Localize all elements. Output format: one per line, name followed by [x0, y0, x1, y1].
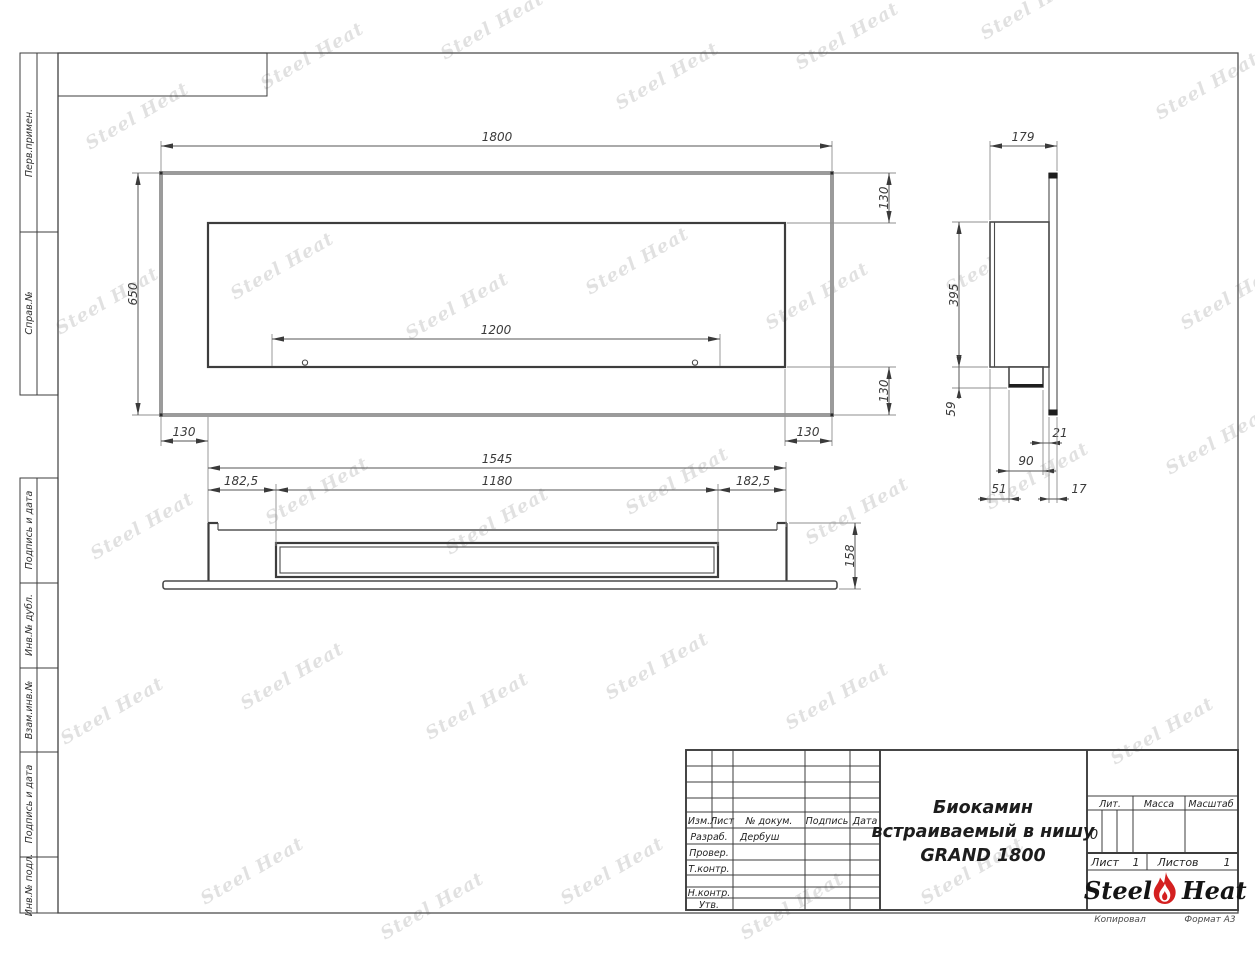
role-checked: Провер. [689, 848, 728, 859]
dim-margin-right: 130 [797, 425, 820, 439]
margin-label: Инв.№ подл. [24, 854, 35, 917]
doc-title-line1: Биокамин [933, 798, 1033, 818]
sheets-total: 1 [1224, 856, 1231, 869]
dim-margin-left: 130 [173, 425, 196, 439]
dim-slot-length: 1180 [482, 474, 513, 488]
technical-drawing-canvas: Steel Heat Steel Heat Steel Heat Steel H… [0, 0, 1255, 970]
doc-title-line3: GRAND 1800 [920, 846, 1045, 866]
sheets-label: Листов [1156, 856, 1198, 869]
role-approved: Утв. [699, 900, 719, 911]
copied-label: Копировал [1094, 915, 1146, 925]
dim-niche-height: 395 [947, 284, 961, 307]
developer-name: Дербуш [739, 832, 780, 843]
dim-burner-width: 1200 [481, 323, 512, 337]
scale-label: Масштаб [1188, 799, 1233, 810]
dim-body-height: 158 [843, 544, 857, 567]
dim-panel-gap: 21 [1052, 426, 1067, 440]
lit-value: 0 [1090, 828, 1098, 843]
rev-header-doc: № докум. [745, 816, 793, 827]
margin-label: Взам.инв.№ [24, 681, 35, 740]
doc-title-line2: встраиваемый в нишу [872, 822, 1097, 842]
dim-side-offset-left: 182,5 [224, 474, 258, 488]
sheet-label: Лист [1090, 856, 1119, 869]
margin-label: Перв.примен. [24, 109, 35, 177]
role-tcontrol: Т.контр. [688, 864, 729, 875]
steelheat-logo: Steel Heat [1084, 872, 1247, 905]
drawing-sheet: Steel Heat Steel Heat Steel Heat Steel H… [0, 0, 1255, 970]
dim-margin-top: 130 [877, 186, 891, 209]
dim-front-overhang: 17 [1071, 482, 1087, 496]
logo-text-heat: Heat [1181, 876, 1247, 905]
logo-text-steel: Steel [1084, 876, 1152, 905]
role-ncontrol: Н.контр. [688, 888, 731, 899]
dim-front-height: 650 [126, 282, 140, 305]
lit-label: Лит. [1098, 799, 1121, 810]
dim-bottom-step: 59 [944, 401, 958, 416]
dim-depth: 179 [1012, 130, 1035, 144]
base-plate [163, 581, 837, 589]
margin-label: Подпись и дата [24, 490, 35, 569]
dim-side-offset-right: 182,5 [736, 474, 770, 488]
side-body [990, 222, 1049, 367]
mass-label: Масса [1144, 799, 1174, 810]
rev-header-izm: Изм. [688, 816, 710, 827]
dim-foot-depth: 90 [1018, 454, 1034, 468]
dim-front-width: 1800 [482, 130, 513, 144]
role-developed: Разраб. [690, 832, 727, 843]
margin-label: Подпись и дата [24, 764, 35, 843]
margin-label: Справ.№ [24, 291, 35, 334]
dim-body-length: 1545 [482, 452, 513, 466]
format-label: Формат А3 [1184, 915, 1236, 925]
dim-margin-bottom: 130 [877, 379, 891, 402]
dim-back-gap: 51 [991, 482, 1006, 496]
rev-header-sign: Подпись [806, 816, 849, 827]
rev-header-list: Лист [709, 816, 735, 827]
sheet-number: 1 [1133, 856, 1140, 869]
margin-label: Инв.№ дубл. [24, 594, 35, 656]
